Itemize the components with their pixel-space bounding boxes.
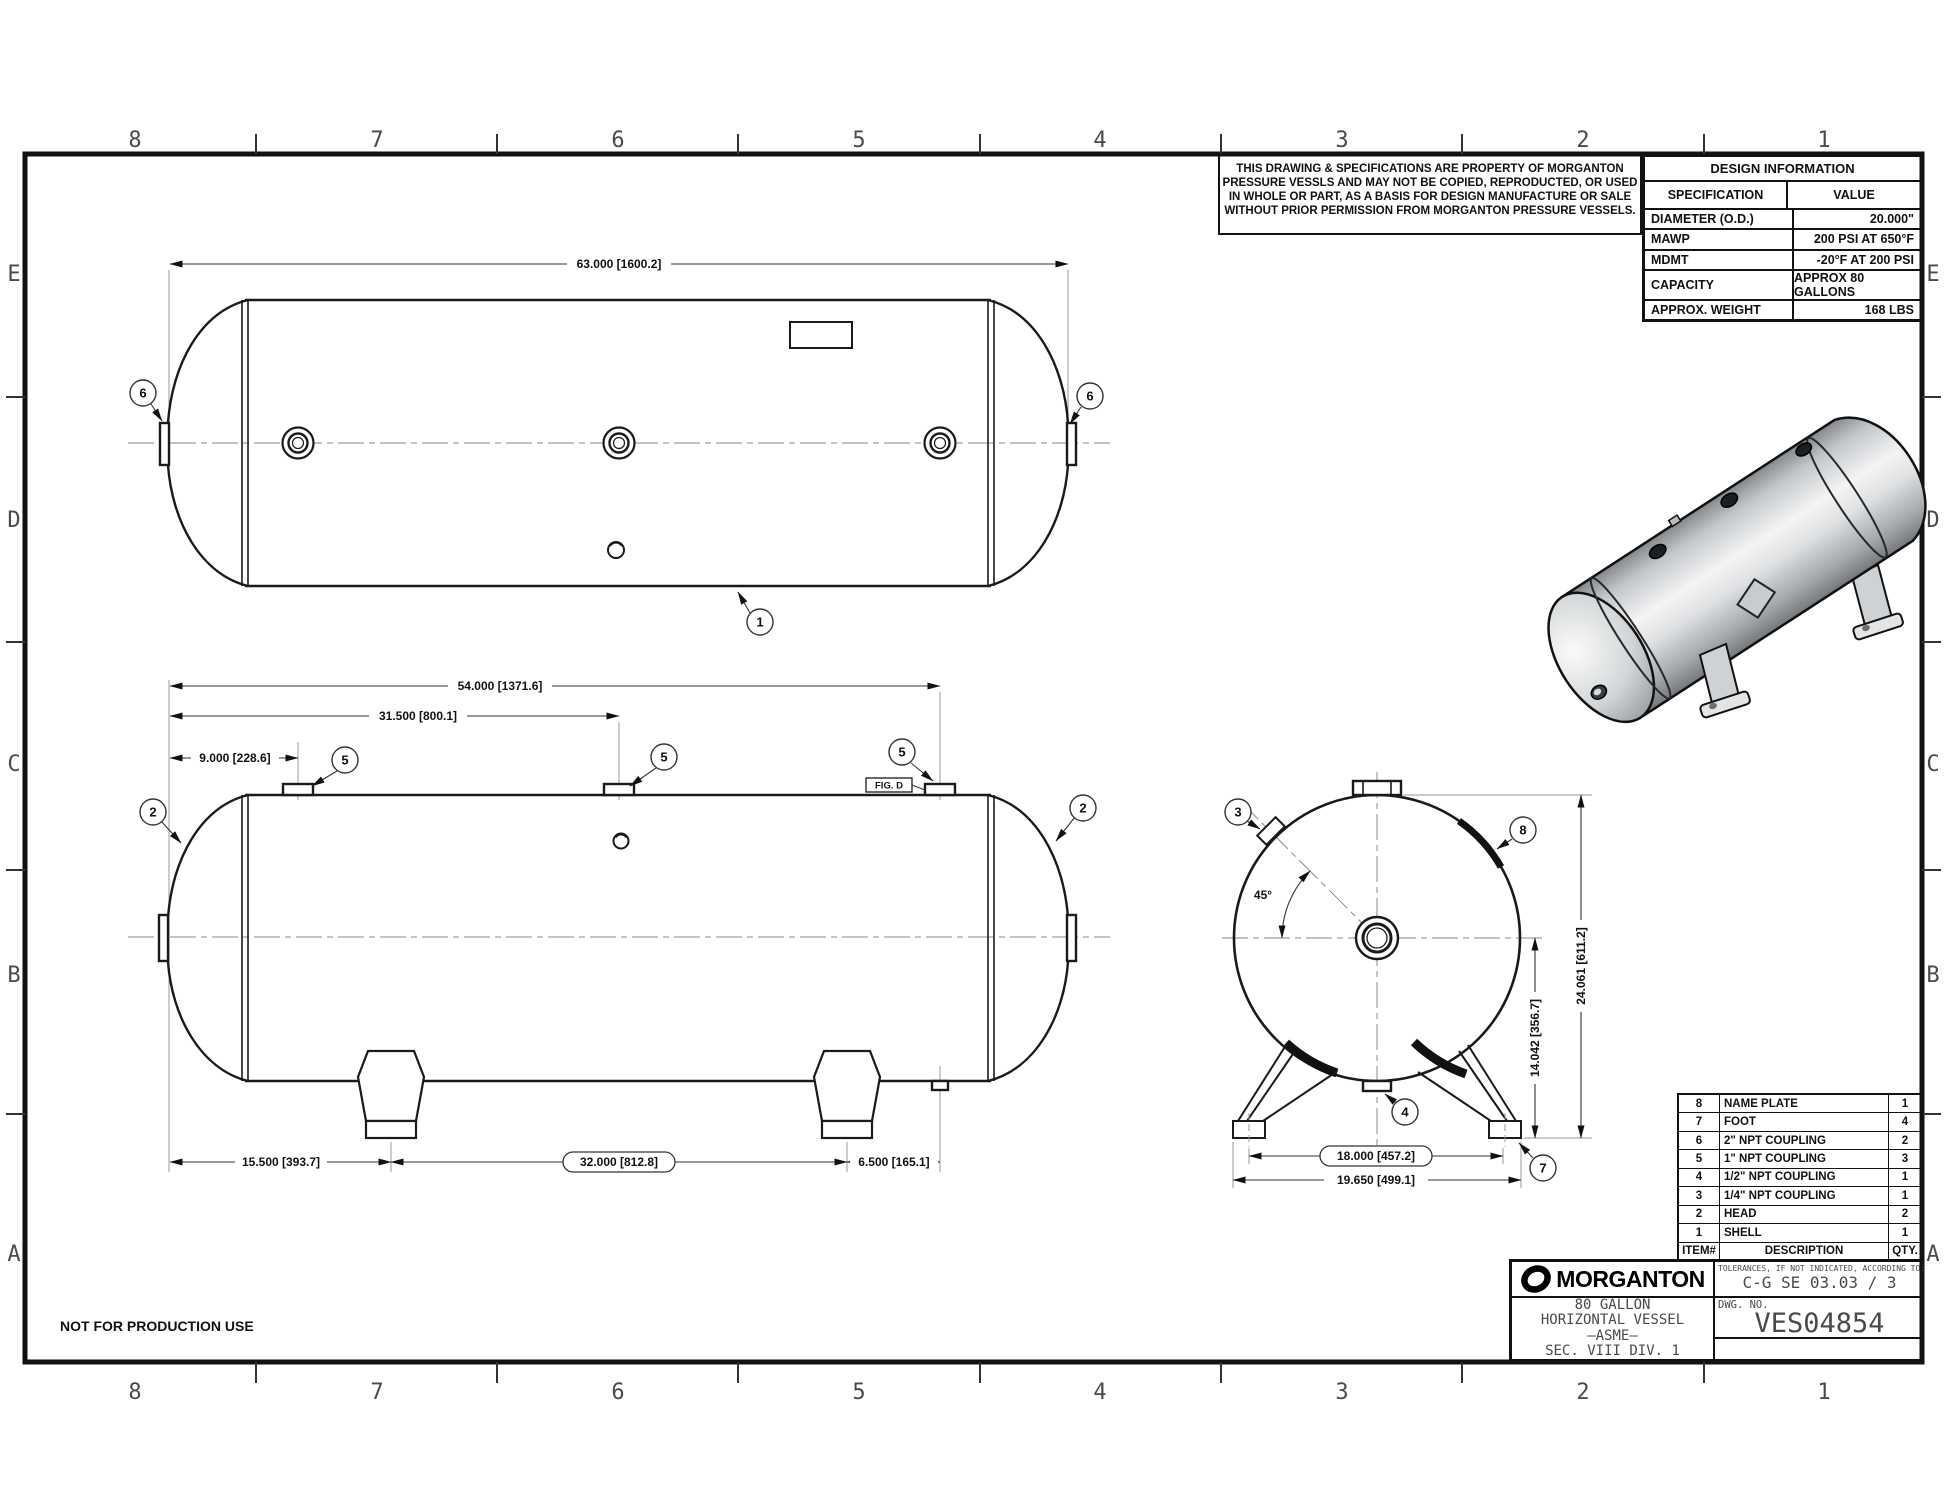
name-plate-outline xyxy=(790,322,852,348)
dimension-coupling-mid: 31.500 [800.1] xyxy=(170,708,619,723)
dimension-drain-offset: 6.500 [165.1] xyxy=(847,1154,940,1169)
grid-row-label: E xyxy=(7,262,20,287)
parts-list-row: 5 1" NPT COUPLING 3 xyxy=(1679,1150,1921,1168)
grid-row-label: A xyxy=(1926,1242,1939,1267)
svg-text:7: 7 xyxy=(1539,1161,1546,1176)
design-info-row: APPROX. WEIGHT 168 LBS xyxy=(1645,301,1920,319)
npt-coupling xyxy=(604,784,634,795)
grid-row-label: D xyxy=(7,508,20,533)
grid-col-label: 8 xyxy=(128,1380,141,1405)
svg-text:6: 6 xyxy=(1086,389,1093,404)
parts-list-row: 2 HEAD 2 xyxy=(1679,1206,1921,1224)
grid-row-label: B xyxy=(1926,963,1939,988)
angle-dimension: 45° xyxy=(1254,871,1310,938)
dimension-label: 19.650 [499.1] xyxy=(1337,1173,1415,1187)
grid-col-label: 3 xyxy=(1335,128,1348,153)
design-info-table: DESIGN INFORMATION SPECIFICATION VALUE D… xyxy=(1642,154,1923,322)
dimension-foot-centers: 18.000 [457.2] xyxy=(1249,1146,1503,1166)
fig-d-label: FIG. D xyxy=(875,781,903,792)
dimension-leg-offset: 15.500 [393.7] xyxy=(170,1154,391,1169)
grid-col-label: 6 xyxy=(611,1380,624,1405)
coupling-fitting xyxy=(925,428,956,459)
grid-col-label: 5 xyxy=(852,128,865,153)
dimension-label: 6.500 [165.1] xyxy=(858,1155,929,1169)
grid-col-label: 1 xyxy=(1817,1380,1830,1405)
design-info-col-spec: SPECIFICATION xyxy=(1645,182,1788,208)
grid-col-label: 2 xyxy=(1576,1380,1589,1405)
svg-text:1: 1 xyxy=(756,615,763,630)
dimension-label: 24.061 [611.2] xyxy=(1574,927,1588,1004)
grid-row-label: E xyxy=(1926,262,1939,287)
grid-col-label: 7 xyxy=(370,1380,383,1405)
drain-coupling-stub xyxy=(932,1081,948,1090)
vessel-leg xyxy=(814,1051,880,1156)
angled-coupling xyxy=(1257,817,1285,845)
design-info-row: CAPACITY APPROX 80 GALLONS xyxy=(1645,271,1920,301)
dimension-overall-length: 63.000 [1600.2] xyxy=(170,256,1068,271)
tolerances-value: C-G SE 03.03 / 3 xyxy=(1715,1273,1924,1292)
parts-list-row: 4 1/2" NPT COUPLING 1 xyxy=(1679,1169,1921,1187)
top-view: 63.000 [1600.2] xyxy=(128,256,1110,586)
fig-d-callout: FIG. D xyxy=(866,778,925,792)
end-coupling-stub xyxy=(1067,915,1076,961)
side-view: 54.000 [1371.6] 31.500 [800.1] 9.000 [22… xyxy=(128,678,1110,1172)
dimension-label: 15.500 [393.7] xyxy=(242,1155,320,1169)
dimension-coupling-first: 9.000 [228.6] xyxy=(170,750,298,765)
grid-col-label: 4 xyxy=(1093,1380,1106,1405)
disclaimer-line: THIS DRAWING & SPECIFICATIONS ARE PROPER… xyxy=(1220,162,1640,176)
small-fitting xyxy=(614,834,629,849)
parts-list-row: 6 2" NPT COUPLING 2 xyxy=(1679,1132,1921,1150)
dimension-label: 54.000 [1371.6] xyxy=(458,679,543,693)
parts-list: 8 NAME PLATE 1 7 FOOT 4 6 2" NPT COUPLIN… xyxy=(1677,1093,1923,1262)
coupling-fitting xyxy=(283,428,314,459)
design-info-title: DESIGN INFORMATION xyxy=(1645,157,1920,182)
vessel-leg xyxy=(358,1051,424,1156)
dimension-coupling-far: 54.000 [1371.6] xyxy=(170,678,940,693)
leg-weld-arc xyxy=(1414,1042,1466,1074)
dimension-height-center: 14.042 [356.7] xyxy=(1528,938,1543,1138)
grid-row-label: C xyxy=(7,752,20,777)
parts-list-row: 3 1/4" NPT COUPLING 1 xyxy=(1679,1187,1921,1205)
svg-text:5: 5 xyxy=(898,745,905,760)
grid-row-label: D xyxy=(1926,508,1939,533)
iso-leg xyxy=(1699,644,1751,718)
dimension-label: 18.000 [457.2] xyxy=(1337,1149,1415,1163)
grid-col-label: 6 xyxy=(611,128,624,153)
end-view: 45° 14.042 [356.7 xyxy=(1222,772,1592,1188)
grid-col-label: 1 xyxy=(1817,128,1830,153)
design-info-row: MAWP 200 PSI AT 650°F xyxy=(1645,230,1920,250)
tolerances-label: TOLERANCES, IF NOT INDICATED, ACCORDING … xyxy=(1715,1262,1924,1273)
drawing-number-cell: DWG. NO. VES04854 xyxy=(1715,1298,1924,1339)
coupling-fitting xyxy=(604,428,635,459)
svg-text:3: 3 xyxy=(1234,805,1241,820)
grid-col-label: 5 xyxy=(852,1380,865,1405)
npt-coupling xyxy=(925,784,955,795)
dimension-label: 32.000 [812.8] xyxy=(580,1155,658,1169)
grid-row-label: C xyxy=(1926,752,1939,777)
dimension-label: 63.000 [1600.2] xyxy=(577,257,662,271)
svg-text:2: 2 xyxy=(1079,801,1086,816)
grid-col-label: 7 xyxy=(370,128,383,153)
dimension-foot-overall: 19.650 [499.1] xyxy=(1233,1172,1521,1187)
end-coupling-stub xyxy=(1067,423,1076,465)
design-info-row: MDMT -20°F AT 200 PSI xyxy=(1645,251,1920,271)
disclaimer-line: IN WHOLE OR PART, AS A BASIS FOR DESIGN … xyxy=(1220,190,1640,204)
design-info-row: DIAMETER (O.D.) 20.000" xyxy=(1645,210,1920,230)
svg-text:6: 6 xyxy=(139,386,146,401)
dimension-label: 45° xyxy=(1254,888,1272,902)
center-coupling xyxy=(1356,917,1398,959)
brand-name: MORGANTON xyxy=(1556,1266,1704,1293)
grid-col-label: 2 xyxy=(1576,128,1589,153)
svg-text:2: 2 xyxy=(149,805,156,820)
end-coupling-stub xyxy=(159,915,168,961)
iso-view xyxy=(1524,392,1946,741)
drawing-sheet: 8 7 6 5 4 3 2 1 8 7 6 5 4 3 2 1 E D C B … xyxy=(0,0,1946,1504)
svg-text:5: 5 xyxy=(660,750,667,765)
parts-list-row: 7 FOOT 4 xyxy=(1679,1113,1921,1131)
parts-list-header: ITEM# DESCRIPTION QTY. xyxy=(1679,1243,1921,1260)
disclaimer-line: PRESSURE VESSLS AND MAY NOT BE COPIED, R… xyxy=(1220,176,1640,190)
end-coupling-stub xyxy=(160,423,169,465)
grid-col-label: 8 xyxy=(128,128,141,153)
name-plate-arc xyxy=(1459,821,1501,867)
svg-text:8: 8 xyxy=(1519,823,1526,838)
design-info-col-value: VALUE xyxy=(1788,182,1920,208)
dimension-label: 9.000 [228.6] xyxy=(199,751,270,765)
dimension-label: 31.500 [800.1] xyxy=(379,709,457,723)
disclaimer-box: THIS DRAWING & SPECIFICATIONS ARE PROPER… xyxy=(1218,154,1642,235)
bottom-coupling xyxy=(1363,1081,1391,1091)
dimension-height-overall: 24.061 [611.2] xyxy=(1574,795,1589,1138)
disclaimer-line: WITHOUT PRIOR PERMISSION FROM MORGANTON … xyxy=(1220,204,1640,218)
dwg-no-value: VES04854 xyxy=(1715,1308,1924,1339)
tolerances-cell: TOLERANCES, IF NOT INDICATED, ACCORDING … xyxy=(1715,1262,1924,1298)
top-coupling xyxy=(1353,781,1401,795)
grid-row-label: B xyxy=(7,963,20,988)
small-fitting xyxy=(608,542,624,558)
morganton-o-icon xyxy=(1520,1265,1552,1293)
npt-coupling xyxy=(283,784,313,795)
grid-row-label: A xyxy=(7,1242,20,1267)
svg-text:5: 5 xyxy=(341,753,348,768)
not-for-production-note: NOT FOR PRODUCTION USE xyxy=(60,1318,254,1334)
leg-weld-arc xyxy=(1286,1043,1337,1073)
dimension-label: 14.042 [356.7] xyxy=(1528,999,1542,1077)
dimension-leg-spacing: 32.000 [812.8] xyxy=(391,1152,847,1172)
title-block: MORGANTON 80 GALLON HORIZONTAL VESSEL –A… xyxy=(1509,1259,1923,1362)
drawing-title: 80 GALLON HORIZONTAL VESSEL –ASME– SEC. … xyxy=(1512,1298,1715,1359)
parts-list-row: 1 SHELL 1 xyxy=(1679,1224,1921,1242)
company-logo: MORGANTON xyxy=(1512,1262,1715,1298)
grid-col-label: 4 xyxy=(1093,128,1106,153)
grid-col-label: 3 xyxy=(1335,1380,1348,1405)
svg-text:4: 4 xyxy=(1401,1105,1409,1120)
parts-list-row: 8 NAME PLATE 1 xyxy=(1679,1095,1921,1113)
title-block-empty-cell xyxy=(1715,1339,1924,1362)
